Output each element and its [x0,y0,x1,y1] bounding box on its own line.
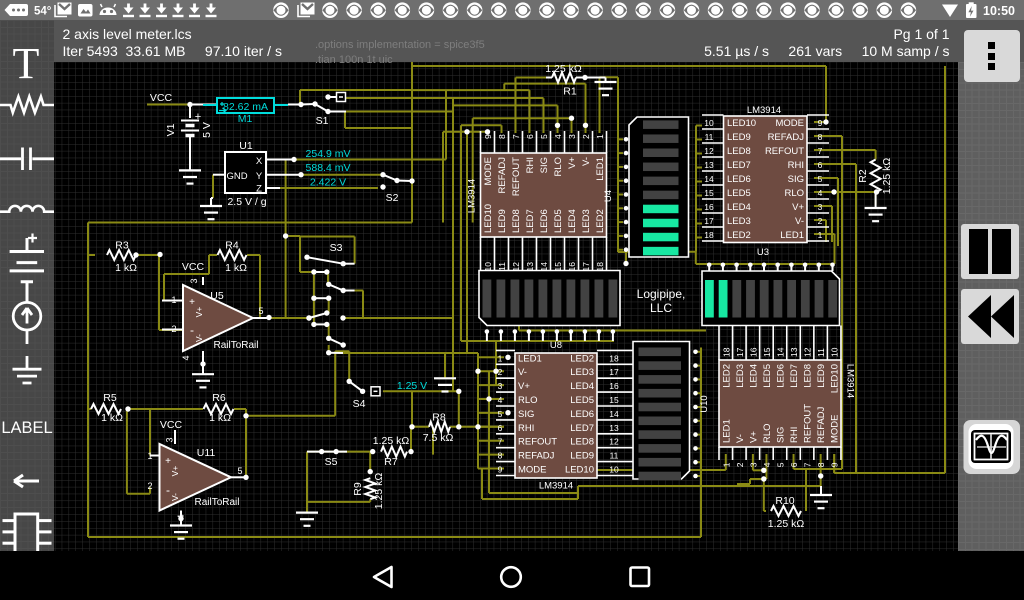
svg-text:18: 18 [721,347,731,357]
svg-text:4: 4 [553,134,563,139]
svg-text:U10: U10 [699,395,710,412]
svg-text:17: 17 [735,347,745,357]
svg-text:17: 17 [704,216,714,226]
svg-text:10: 10 [609,465,619,475]
svg-text:S4: S4 [353,398,366,410]
svg-text:11: 11 [610,451,619,461]
svg-text:LED5: LED5 [727,188,751,199]
svg-text:Y: Y [256,171,263,182]
svg-text:5: 5 [776,462,786,467]
svg-text:LED2: LED2 [727,230,751,241]
svg-text:1.25 kΩ: 1.25 kΩ [768,518,805,530]
svg-text:5 V: 5 V [201,122,213,138]
svg-text:17: 17 [609,367,619,377]
svg-text:LED8: LED8 [511,209,522,233]
svg-text:1 kΩ: 1 kΩ [209,412,231,424]
svg-text:54°: 54° [34,6,52,18]
svg-text:LED4: LED4 [727,202,751,213]
svg-text:LED6: LED6 [570,409,594,420]
svg-text:15: 15 [704,188,714,198]
svg-text:REFADJ: REFADJ [518,451,555,462]
svg-text:LM3914: LM3914 [747,105,781,116]
svg-text:RHI: RHI [525,157,536,173]
svg-text:REFOUT: REFOUT [518,437,557,448]
svg-text:9: 9 [498,465,503,475]
svg-text:VCC: VCC [182,261,205,273]
svg-text:LED5: LED5 [762,364,773,388]
svg-text:U5: U5 [210,290,224,302]
svg-text:5: 5 [237,466,242,476]
svg-text:RHI: RHI [788,160,804,171]
svg-text:LED2: LED2 [595,209,606,233]
svg-text:R5: R5 [103,392,117,404]
svg-text:U3: U3 [757,247,769,258]
svg-text:1.25 kΩ: 1.25 kΩ [373,435,410,447]
svg-text:10: 10 [830,347,840,357]
svg-text:5: 5 [498,409,503,419]
svg-text:15: 15 [762,347,772,357]
svg-text:12: 12 [609,437,619,447]
svg-text:14: 14 [609,409,619,419]
svg-text:VCC: VCC [160,419,183,431]
svg-text:6: 6 [818,160,823,170]
svg-text:15: 15 [609,395,619,405]
svg-text:+: + [165,456,171,467]
svg-text:16: 16 [748,347,758,357]
svg-text:SIG: SIG [539,157,550,173]
svg-text:V1: V1 [165,123,177,136]
svg-text:LED1: LED1 [721,419,732,443]
svg-text:588.4 mV: 588.4 mV [306,162,351,174]
svg-text:U1: U1 [239,140,253,152]
svg-text:2.422 V: 2.422 V [310,177,346,189]
svg-text:1.25 V: 1.25 V [397,380,427,392]
svg-text:3: 3 [818,202,823,212]
svg-text:3: 3 [189,278,199,283]
svg-text:RHI: RHI [789,427,800,443]
svg-text:5: 5 [258,306,263,316]
svg-text:S5: S5 [325,456,338,468]
svg-text:V+: V+ [194,307,204,318]
svg-text:MODE: MODE [830,415,841,444]
svg-text:RLO: RLO [784,188,804,199]
svg-text:LED8: LED8 [570,437,594,448]
svg-text:16: 16 [609,381,619,391]
svg-text:REFOUT: REFOUT [511,157,522,196]
svg-text:U11: U11 [197,447,216,459]
svg-text:LM3914: LM3914 [539,481,573,492]
svg-text:2: 2 [818,216,823,226]
svg-text:R8: R8 [432,412,446,424]
svg-text:LED10: LED10 [483,204,494,233]
svg-text:V-: V- [194,334,204,342]
svg-text:7: 7 [803,462,813,467]
svg-text:14: 14 [776,347,786,357]
svg-text:R9: R9 [352,482,364,496]
svg-text:6: 6 [525,134,535,139]
svg-text:V+: V+ [170,466,180,477]
svg-text:RHI: RHI [518,423,534,434]
svg-text:LED7: LED7 [789,364,800,388]
svg-text:V+: V+ [518,381,530,392]
svg-text:V-: V- [581,157,592,166]
svg-text:RailToRail: RailToRail [194,497,239,508]
svg-text:LED8: LED8 [727,146,751,157]
svg-text:4: 4 [818,188,823,198]
svg-text:RLO: RLO [518,395,538,406]
svg-text:S1: S1 [316,115,329,127]
svg-text:RLO: RLO [762,423,773,443]
svg-text:1: 1 [595,134,605,139]
svg-text:8: 8 [816,462,826,467]
svg-text:T: T [13,39,40,88]
svg-text:LED4: LED4 [748,364,759,388]
svg-text:LM3914: LM3914 [467,179,478,213]
svg-text:3: 3 [748,462,758,467]
svg-text:LED10: LED10 [830,364,841,393]
svg-text:7.5 kΩ: 7.5 kΩ [423,432,454,444]
svg-text:2.5 V / g: 2.5 V / g [227,196,266,208]
svg-text:LED6: LED6 [776,364,787,388]
svg-text:1: 1 [498,353,503,363]
svg-text:LED10: LED10 [565,465,594,476]
svg-text:REFADJ: REFADJ [816,406,827,443]
svg-text:8: 8 [498,451,503,461]
svg-text:V-: V- [518,367,527,378]
svg-text:1 kΩ: 1 kΩ [225,262,247,274]
svg-text:LED1: LED1 [518,353,542,364]
svg-text:LED6: LED6 [539,209,550,233]
svg-text:18: 18 [609,353,619,363]
svg-text:10: 10 [704,118,714,128]
svg-text:MODE: MODE [483,157,494,186]
svg-text:3: 3 [567,134,577,139]
svg-text:1: 1 [818,230,823,240]
svg-text:Z: Z [256,184,262,195]
svg-text:2: 2 [498,367,503,377]
svg-text:9: 9 [818,118,823,128]
svg-text:LED4: LED4 [570,381,594,392]
svg-text:REFOUT: REFOUT [765,146,804,157]
svg-text:LED9: LED9 [497,209,508,233]
svg-text:1: 1 [721,462,731,467]
svg-text:X: X [256,156,263,167]
svg-text:S2: S2 [386,192,399,204]
svg-text:82.62 mA: 82.62 mA [223,101,268,113]
svg-text:LED5: LED5 [553,209,564,233]
svg-text:V-: V- [170,493,180,501]
svg-text:R1: R1 [563,86,577,98]
svg-text:7: 7 [818,146,823,156]
svg-text:R10: R10 [775,495,794,507]
svg-text:LED3: LED3 [727,216,751,227]
svg-text:+: + [189,297,195,308]
svg-text:2: 2 [581,134,591,139]
svg-text:V-: V- [795,216,804,227]
svg-text:VCC: VCC [150,92,173,104]
svg-text:6: 6 [498,423,503,433]
svg-text:18: 18 [704,230,714,240]
svg-text:R6: R6 [212,392,226,404]
svg-text:+: + [195,111,201,123]
svg-text:V+: V+ [567,157,578,169]
svg-text:GND: GND [226,171,247,182]
svg-text:V+: V+ [792,202,804,213]
svg-text:13: 13 [609,423,619,433]
svg-text:LED10: LED10 [727,118,756,129]
svg-text:LED9: LED9 [570,451,594,462]
svg-text:3: 3 [498,381,503,391]
svg-text:LED7: LED7 [525,209,536,233]
svg-text:SIG: SIG [776,427,787,443]
svg-text:13: 13 [704,160,714,170]
svg-text:4: 4 [181,355,191,360]
svg-text:10:50: 10:50 [983,4,1015,18]
svg-text:REFADJ: REFADJ [497,157,508,194]
svg-text:LED9: LED9 [816,364,827,388]
svg-text:LABEL: LABEL [1,419,52,437]
svg-text:REFOUT: REFOUT [803,404,814,443]
svg-text:4: 4 [498,395,503,405]
svg-text:8: 8 [818,132,823,142]
svg-text:9: 9 [483,134,493,139]
svg-text:LED4: LED4 [567,209,578,233]
svg-text:LM3914: LM3914 [845,364,856,398]
svg-text:MODE: MODE [776,118,805,129]
svg-text:LED2: LED2 [721,364,732,388]
svg-text:11: 11 [497,262,507,271]
svg-text:16: 16 [704,202,714,212]
svg-text:7: 7 [498,437,503,447]
svg-text:LED8: LED8 [803,364,814,388]
svg-text:2: 2 [147,481,152,491]
svg-text:9: 9 [830,462,840,467]
svg-text:14: 14 [704,174,714,184]
svg-text:V+: V+ [748,431,759,443]
svg-text:Logipipe,: Logipipe, [637,287,686,301]
svg-text:LED1: LED1 [780,230,804,241]
svg-text:1.25 kΩ: 1.25 kΩ [373,473,385,510]
svg-text:LED7: LED7 [727,160,751,171]
svg-text:R2: R2 [857,169,869,183]
svg-text:1 kΩ: 1 kΩ [115,262,137,274]
svg-text:8: 8 [497,134,507,139]
svg-text:RailToRail: RailToRail [213,340,258,351]
svg-text:S3: S3 [330,242,343,254]
svg-text:4: 4 [762,462,772,467]
svg-text:V-: V- [735,434,746,443]
svg-text:SIG: SIG [518,409,534,420]
svg-text:12: 12 [803,347,813,357]
svg-text:1.25 kΩ: 1.25 kΩ [545,63,582,75]
svg-text:5: 5 [818,174,823,184]
svg-text:U4: U4 [603,190,614,202]
svg-text:1 kΩ: 1 kΩ [101,412,123,424]
svg-text:3: 3 [165,437,175,442]
svg-text:MODE: MODE [518,465,547,476]
svg-text:6: 6 [789,462,799,467]
svg-text:LED5: LED5 [570,395,594,406]
svg-text:LED2: LED2 [570,353,594,364]
svg-text:LED1: LED1 [595,157,606,181]
svg-text:2: 2 [735,462,745,467]
svg-text:SIG: SIG [788,174,804,185]
svg-text:U8: U8 [550,340,562,351]
svg-text:11: 11 [705,132,714,142]
svg-text:RLO: RLO [553,157,564,177]
svg-text:LED3: LED3 [570,367,594,378]
svg-text:LED3: LED3 [735,364,746,388]
svg-text:REFADJ: REFADJ [768,132,805,143]
svg-text:5: 5 [539,134,549,139]
svg-text:LED3: LED3 [581,209,592,233]
svg-text:R3: R3 [115,240,129,252]
svg-text:12: 12 [704,146,714,156]
svg-text:M1: M1 [238,113,253,125]
svg-text:1.25 kΩ: 1.25 kΩ [881,158,893,195]
svg-text:7: 7 [511,134,521,139]
svg-text:11: 11 [816,348,826,357]
svg-text:R4: R4 [225,240,239,252]
svg-text:R7: R7 [384,456,398,468]
svg-text:254.9 mV: 254.9 mV [306,148,351,160]
svg-text:LED7: LED7 [570,423,594,434]
svg-text:LLC: LLC [650,301,672,315]
svg-text:LED9: LED9 [727,132,751,143]
svg-text:13: 13 [789,347,799,357]
svg-text:LED6: LED6 [727,174,751,185]
